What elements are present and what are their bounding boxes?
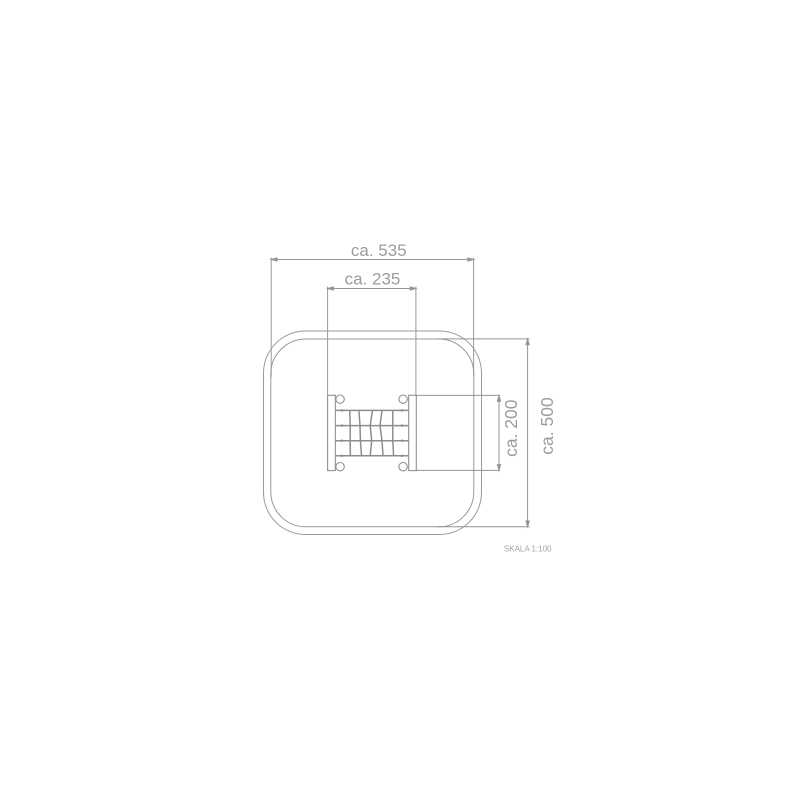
svg-text:ca. 200: ca. 200 (501, 399, 521, 457)
svg-text:ca. 500: ca. 500 (537, 397, 557, 455)
svg-text:ca. 535: ca. 535 (351, 241, 407, 260)
svg-text:ca. 235: ca. 235 (345, 270, 401, 289)
svg-text:SKALA 1:100: SKALA 1:100 (504, 545, 552, 554)
